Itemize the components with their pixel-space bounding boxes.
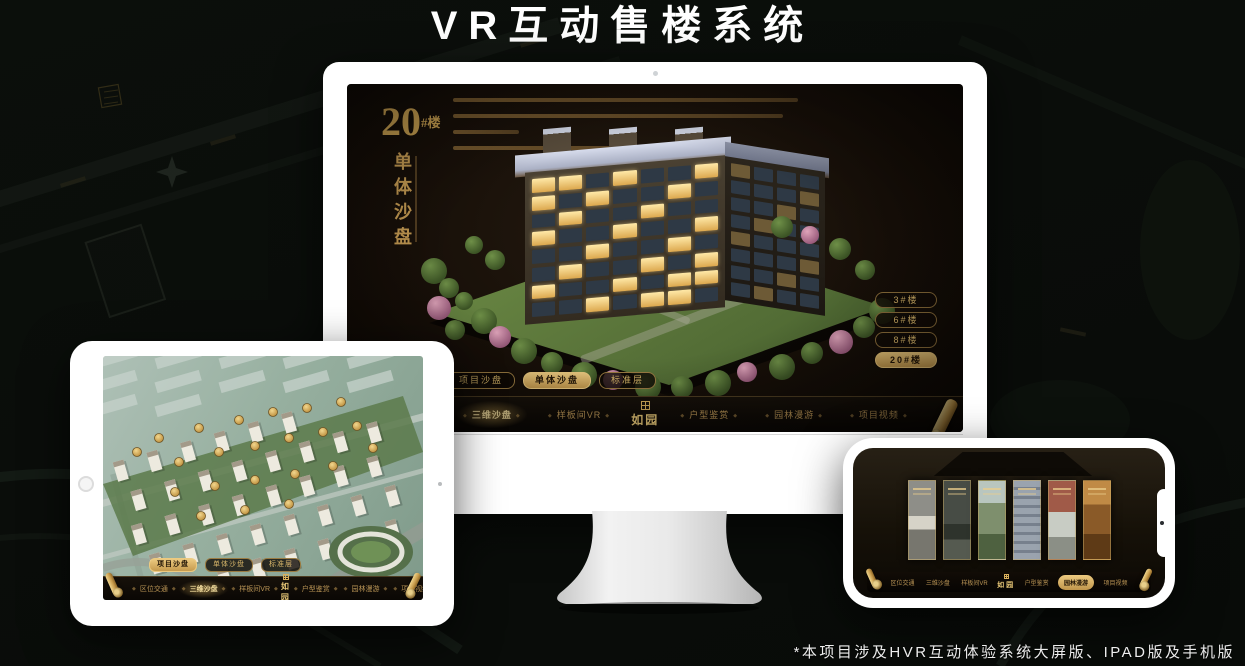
window: [532, 248, 555, 264]
window: [754, 167, 773, 183]
tree: [541, 352, 563, 374]
window: [695, 287, 718, 303]
view-tab-0[interactable]: 项目沙盘: [447, 372, 515, 389]
window: [754, 184, 773, 200]
tree: [511, 338, 537, 364]
view-tab-row: 项目沙盘单体沙盘标准层: [447, 372, 656, 389]
window: [641, 274, 664, 290]
window: [613, 241, 636, 257]
nav-item-3[interactable]: 户型鉴赏: [1023, 575, 1051, 590]
window: [586, 261, 609, 277]
nav-item-2[interactable]: 样板间VR: [228, 580, 280, 598]
ipad-mockup: 项目沙盘单体沙盘标准层 区位交通三维沙盘样板间VR如园户型鉴赏园林漫游项目视频: [70, 341, 454, 626]
window: [754, 269, 773, 285]
nav-item-1[interactable]: 三维沙盘: [457, 401, 527, 428]
building-marker[interactable]: [337, 398, 346, 407]
building-marker[interactable]: [319, 428, 328, 437]
flowering-tree: [737, 362, 757, 382]
monitor-camera-dot: [653, 71, 658, 76]
building-marker[interactable]: [369, 444, 378, 453]
tree: [769, 354, 795, 380]
window: [800, 276, 819, 292]
view-tab-1[interactable]: 单体沙盘: [205, 558, 253, 572]
building-marker[interactable]: [235, 416, 244, 425]
tree: [671, 376, 693, 398]
window: [695, 234, 718, 250]
window: [695, 269, 718, 285]
window: [777, 170, 796, 186]
gallery-card-3[interactable]: [978, 480, 1006, 560]
window: [668, 236, 691, 252]
window: [559, 175, 582, 191]
gallery-card-4[interactable]: [1013, 480, 1041, 560]
nav-item-5[interactable]: 项目视频: [1101, 575, 1129, 590]
monitor-stand: [545, 511, 775, 619]
city-block: [219, 356, 266, 369]
window: [586, 297, 609, 313]
tree: [829, 238, 851, 260]
city-block: [219, 370, 266, 393]
ipad-app-screen: 项目沙盘单体沙盘标准层 区位交通三维沙盘样板间VR如园户型鉴赏园林漫游项目视频: [103, 356, 423, 600]
tree: [801, 342, 823, 364]
flowering-tree: [801, 226, 819, 244]
window: [559, 192, 582, 208]
window: [777, 289, 796, 305]
tree: [465, 236, 483, 254]
building-marker[interactable]: [155, 434, 164, 443]
building-facade-front: [525, 155, 725, 324]
window: [613, 223, 636, 239]
building-marker[interactable]: [269, 408, 278, 417]
footer-note: *本项目涉及HVR互动体验系统大屏版、IPAD版及手机版: [794, 641, 1235, 662]
window: [532, 177, 555, 193]
window: [800, 259, 819, 275]
window: [800, 242, 819, 258]
nav-item-2[interactable]: 样板间VR: [959, 575, 989, 590]
window: [777, 238, 796, 254]
view-tab-0[interactable]: 项目沙盘: [149, 558, 197, 572]
building-marker[interactable]: [251, 476, 260, 485]
city-block: [155, 394, 202, 417]
window: [800, 174, 819, 190]
building-marker[interactable]: [353, 422, 362, 431]
tree: [445, 320, 465, 340]
tree: [485, 250, 505, 270]
window: [754, 286, 773, 302]
building-number-heading: 20#楼: [381, 102, 441, 142]
city-block: [347, 370, 394, 393]
building-marker[interactable]: [171, 488, 180, 497]
main-navbar: 区位交通三维沙盘样板间VR如园户型鉴赏园林漫游项目视频: [103, 576, 423, 600]
ipad-camera-dot: [438, 482, 442, 486]
main-navbar: 区位交通三维沙盘样板间VR如园户型鉴赏园林漫游项目视频: [867, 572, 1151, 592]
brand-seal-icon: [283, 574, 289, 580]
gallery-card-1[interactable]: [908, 480, 936, 560]
flowering-tree: [829, 330, 853, 354]
building-marker[interactable]: [251, 442, 260, 451]
window: [613, 170, 636, 186]
window: [731, 231, 750, 247]
window: [532, 213, 555, 229]
brand-logo-text: 如园: [281, 581, 291, 600]
view-tab-2[interactable]: 标准层: [261, 558, 301, 572]
window: [668, 201, 691, 217]
building-marker[interactable]: [241, 506, 250, 515]
city-block: [155, 356, 202, 369]
window: [586, 208, 609, 224]
nav-item-3[interactable]: 户型鉴赏: [674, 401, 744, 428]
flowering-tree: [427, 296, 451, 320]
city-block: [103, 394, 138, 417]
building-number: 20: [381, 99, 421, 144]
window: [586, 243, 609, 259]
window: [559, 246, 582, 262]
tree: [455, 292, 473, 310]
window: [532, 195, 555, 211]
floor-button-1[interactable]: 6#楼: [875, 312, 937, 328]
window: [532, 284, 555, 300]
building-marker[interactable]: [195, 424, 204, 433]
tree: [771, 216, 793, 238]
window: [559, 263, 582, 279]
view-tab-1[interactable]: 单体沙盘: [523, 372, 591, 389]
window: [754, 252, 773, 268]
building-marker[interactable]: [285, 434, 294, 443]
poster-canvas: VR互动售楼系统 20#楼 单体沙盘: [0, 0, 1245, 666]
window: [668, 183, 691, 199]
window: [641, 203, 664, 219]
window: [668, 165, 691, 181]
city-block: [103, 356, 138, 369]
building-marker[interactable]: [211, 482, 220, 491]
window: [731, 197, 750, 213]
window: [559, 228, 582, 244]
window: [586, 172, 609, 188]
brand-seal-icon: [1004, 574, 1009, 579]
floor-button-group: 3#楼6#楼8#楼20#楼: [875, 292, 939, 372]
building-marker[interactable]: [175, 458, 184, 467]
window: [668, 254, 691, 270]
window: [668, 272, 691, 288]
window: [777, 255, 796, 271]
window: [613, 205, 636, 221]
tree: [855, 260, 875, 280]
window: [668, 218, 691, 234]
phone-notch: [1157, 489, 1165, 557]
building-marker[interactable]: [197, 512, 206, 521]
window: [586, 190, 609, 206]
gallery-card-2[interactable]: [943, 480, 971, 560]
nav-item-4[interactable]: 园林漫游: [1058, 575, 1094, 590]
brand-logo: 如园: [631, 401, 659, 428]
window: [777, 272, 796, 288]
nav-item-4[interactable]: 园林漫游: [759, 401, 829, 428]
window: [731, 265, 750, 281]
window: [695, 163, 718, 179]
window: [695, 252, 718, 268]
brand-logo: 如园: [997, 574, 1015, 590]
building-number-suffix: #楼: [421, 115, 441, 130]
brand-logo-text: 如园: [631, 411, 659, 428]
window: [695, 181, 718, 197]
window: [641, 168, 664, 184]
building-marker[interactable]: [285, 500, 294, 509]
nav-item-2[interactable]: 样板间VR: [542, 401, 616, 428]
window: [754, 201, 773, 217]
window: [559, 281, 582, 297]
flowering-tree: [489, 326, 511, 348]
brand-seal-icon: [641, 401, 650, 410]
brand-logo-text: 如园: [997, 580, 1015, 590]
city-block: [283, 356, 330, 369]
window: [532, 266, 555, 282]
view-tab-row: 项目沙盘单体沙盘标准层: [149, 558, 301, 572]
nav-item-5[interactable]: 项目视频: [844, 401, 914, 428]
window: [613, 188, 636, 204]
window: [559, 299, 582, 315]
gallery-card-5[interactable]: [1048, 480, 1076, 560]
window: [641, 185, 664, 201]
window: [800, 293, 819, 309]
window: [641, 221, 664, 237]
window: [695, 216, 718, 232]
nav-item-0[interactable]: 区位交通: [129, 580, 179, 598]
window: [731, 248, 750, 264]
window: [731, 163, 750, 179]
building-marker[interactable]: [303, 404, 312, 413]
window: [800, 208, 819, 224]
city-block: [155, 370, 202, 393]
nav-item-1[interactable]: 三维沙盘: [924, 575, 952, 590]
view-title-vertical: 单体沙盘: [389, 152, 415, 252]
window: [559, 210, 582, 226]
window: [668, 289, 691, 305]
window: [613, 259, 636, 275]
window: [641, 292, 664, 308]
building-marker[interactable]: [291, 470, 300, 479]
window: [613, 276, 636, 292]
floor-button-3[interactable]: 20#楼: [875, 352, 937, 368]
floor-button-2[interactable]: 8#楼: [875, 332, 937, 348]
floor-button-0[interactable]: 3#楼: [875, 292, 937, 308]
city-block: [283, 370, 330, 393]
stadium: [329, 526, 413, 578]
window: [731, 282, 750, 298]
nav-item-0[interactable]: 区位交通: [888, 575, 916, 590]
window: [613, 294, 636, 310]
ipad-home-button[interactable]: [78, 476, 94, 492]
window: [586, 279, 609, 295]
scene-gallery: [908, 480, 1111, 560]
window: [695, 198, 718, 214]
residential-building: [525, 150, 825, 330]
tree: [705, 370, 731, 396]
building-marker[interactable]: [329, 462, 338, 471]
city-block: [347, 356, 394, 369]
gallery-card-6[interactable]: [1083, 480, 1111, 560]
view-title-sub-bar: [415, 156, 417, 242]
window: [532, 230, 555, 246]
phone-camera-dot: [1160, 521, 1164, 525]
window: [731, 180, 750, 196]
phone-app-screen: 区位交通三维沙盘样板间VR如园户型鉴赏园林漫游项目视频: [853, 448, 1165, 598]
phone-mockup: 区位交通三维沙盘样板间VR如园户型鉴赏园林漫游项目视频: [843, 438, 1175, 608]
building-3d-render: [425, 140, 895, 390]
window: [641, 256, 664, 272]
nav-item-4[interactable]: 园林漫游: [341, 580, 391, 598]
view-tab-2[interactable]: 标准层: [599, 372, 656, 389]
window: [532, 301, 555, 317]
courtyard-silhouette: [923, 452, 1103, 476]
city-block: [103, 370, 138, 393]
window: [754, 235, 773, 251]
building-marker[interactable]: [133, 448, 142, 457]
window: [731, 214, 750, 230]
nav-item-3[interactable]: 户型鉴赏: [291, 580, 341, 598]
window: [641, 239, 664, 255]
window: [777, 187, 796, 203]
brand-logo: 如园: [281, 574, 291, 600]
window: [800, 191, 819, 207]
page-title: VR互动售楼系统: [0, 0, 1245, 52]
building-marker[interactable]: [215, 448, 224, 457]
nav-item-1[interactable]: 三维沙盘: [179, 580, 229, 598]
window: [586, 226, 609, 242]
